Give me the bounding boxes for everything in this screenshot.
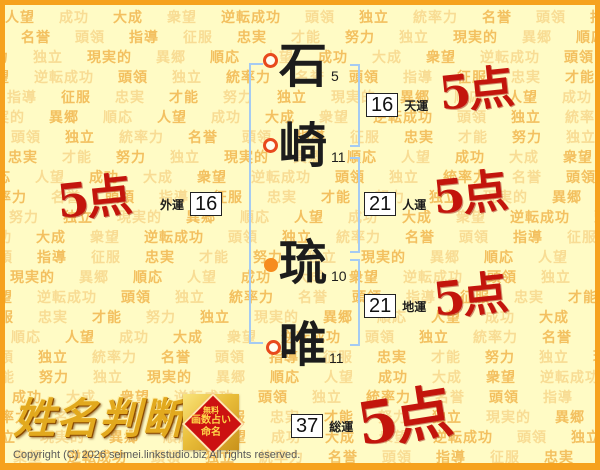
chiun-score-stamp: 5点 <box>431 269 507 322</box>
copyright-text: Copyright (C) 2026 seimei.linkstudio.biz… <box>13 449 300 461</box>
chiun-label: 地運 <box>402 298 426 315</box>
char-marker-2 <box>263 138 278 153</box>
badge-line-1: 無料 <box>203 406 219 415</box>
souun-score-stamp: 5点 <box>353 382 453 454</box>
free-naming-badge[interactable]: 無料 画数占い 命名 <box>183 394 239 450</box>
souun-group: 37 総運 <box>291 414 353 438</box>
badge-line-3: 命名 <box>201 427 221 438</box>
char-marker-1 <box>263 53 278 68</box>
souun-value-box: 37 <box>291 414 323 438</box>
souun-label: 総運 <box>329 418 353 435</box>
stroke-count-1: 5 <box>331 69 339 83</box>
tenun-bracket <box>350 64 360 147</box>
jinun-label: 人運 <box>402 196 426 213</box>
seimei-handan-result-page: 人望成功大成衆望逆転成功頭領独立統率力名誉頭領指導征服統率力名誉頭領指導征服忠実… <box>0 0 600 470</box>
name-char-1: 石 <box>279 43 327 91</box>
chiun-group: 21 地運 <box>364 294 426 318</box>
stroke-count-2: 11 <box>331 150 346 164</box>
chiun-value-box: 21 <box>364 294 396 318</box>
jinun-group: 21 人運 <box>364 192 426 216</box>
site-logo[interactable]: 姓名判断 <box>13 397 185 441</box>
stroke-count-4: 11 <box>329 351 344 365</box>
stroke-count-3: 10 <box>331 269 347 283</box>
gaiun-group: 外運 16 <box>160 192 222 216</box>
chiun-bracket <box>350 259 360 346</box>
badge-text: 無料 画数占い 命名 <box>183 394 239 450</box>
jinun-score-stamp: 5点 <box>431 167 507 220</box>
tenun-score-stamp: 5点 <box>437 63 513 116</box>
jinun-bracket <box>350 157 360 253</box>
tenun-label: 天運 <box>404 97 428 114</box>
name-char-2: 崎 <box>279 123 327 171</box>
gaiun-label: 外運 <box>160 196 184 213</box>
badge-line-2: 画数占い <box>191 415 231 427</box>
char-marker-3 <box>264 258 278 272</box>
jinun-value-box: 21 <box>364 192 396 216</box>
gaiun-bracket <box>249 63 263 344</box>
tenun-group: 16 天運 <box>366 93 428 117</box>
name-char-4: 唯 <box>279 322 327 370</box>
tenun-value-box: 16 <box>366 93 398 117</box>
gaiun-score-stamp: 5点 <box>55 171 131 224</box>
gaiun-value-box: 16 <box>190 192 222 216</box>
name-char-3: 琉 <box>279 240 327 288</box>
